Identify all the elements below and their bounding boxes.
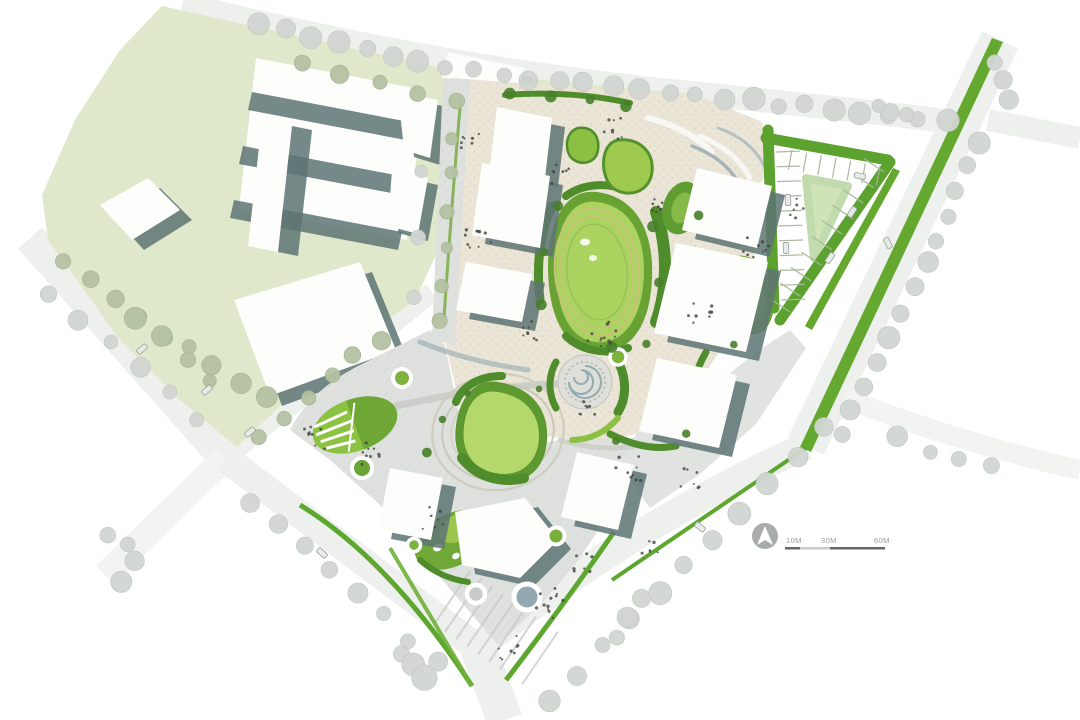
person-dot xyxy=(583,567,585,569)
tree xyxy=(840,400,860,420)
person-dot xyxy=(501,658,503,660)
person-dot xyxy=(619,117,622,120)
tree xyxy=(248,13,270,35)
person-dot xyxy=(367,448,369,450)
tree xyxy=(730,341,738,349)
person-dot xyxy=(636,466,638,468)
person-dot xyxy=(761,240,764,243)
tree xyxy=(987,55,1002,70)
person-dot xyxy=(752,256,754,258)
person-dot xyxy=(439,510,442,513)
person-dot xyxy=(377,453,380,456)
person-dot xyxy=(789,214,792,217)
person-dot xyxy=(542,603,545,606)
site-building xyxy=(472,163,550,248)
person-dot xyxy=(530,320,533,323)
person-dot xyxy=(365,454,368,457)
person-dot xyxy=(460,141,463,144)
tree xyxy=(540,248,548,256)
tree xyxy=(125,551,145,571)
person-dot xyxy=(460,146,463,149)
scale-label-10m: 10M xyxy=(786,536,802,545)
person-dot xyxy=(607,339,610,342)
person-dot xyxy=(553,171,555,173)
tree xyxy=(595,637,610,652)
tree xyxy=(163,385,177,399)
person-dot xyxy=(694,314,697,317)
person-dot xyxy=(708,315,710,317)
person-dot xyxy=(550,182,553,185)
tree xyxy=(629,78,650,99)
person-dot xyxy=(693,483,695,485)
tree xyxy=(124,307,146,329)
tree xyxy=(887,426,908,447)
person-dot xyxy=(484,231,487,234)
person-dot xyxy=(757,244,760,247)
person-dot xyxy=(653,198,655,200)
person-dot xyxy=(515,635,517,637)
person-dot xyxy=(437,519,439,521)
person-dot xyxy=(590,332,593,335)
tree xyxy=(107,290,125,308)
person-dot xyxy=(362,451,365,454)
person-dot xyxy=(471,137,474,140)
person-dot xyxy=(311,433,314,436)
tree xyxy=(868,354,886,372)
person-dot xyxy=(428,506,431,509)
tree xyxy=(422,448,432,458)
tree xyxy=(412,665,438,691)
person-dot xyxy=(463,137,465,139)
person-dot xyxy=(641,552,644,555)
tree xyxy=(325,368,340,383)
person-dot xyxy=(434,526,436,528)
person-dot xyxy=(802,207,805,210)
parking-stall-line xyxy=(779,240,803,241)
tree xyxy=(435,279,449,293)
person-dot xyxy=(442,523,444,525)
person-dot xyxy=(680,485,682,487)
person-dot xyxy=(555,595,558,598)
person-dot xyxy=(631,474,633,476)
tree xyxy=(649,582,672,605)
person-dot xyxy=(655,211,657,213)
tree xyxy=(410,86,426,102)
tree xyxy=(968,132,990,154)
person-dot xyxy=(575,554,578,557)
person-dot xyxy=(692,302,694,304)
person-dot xyxy=(582,400,585,403)
tree xyxy=(231,373,252,394)
pond xyxy=(514,584,540,610)
tree xyxy=(407,50,429,72)
tree xyxy=(586,95,595,104)
tree xyxy=(573,72,592,91)
scale-label-60m: 60M xyxy=(874,536,890,545)
person-dot xyxy=(319,428,322,431)
person-dot xyxy=(490,241,492,243)
scale-label-30m: 30M xyxy=(821,536,837,545)
tree xyxy=(111,571,132,592)
parking-stall-line xyxy=(778,210,802,211)
person-dot xyxy=(614,466,617,469)
parking-stall-line xyxy=(780,255,804,256)
person-dot xyxy=(552,617,554,619)
tree xyxy=(241,494,260,513)
person-dot xyxy=(593,413,596,416)
person-dot xyxy=(613,119,615,121)
person-dot xyxy=(629,476,632,479)
person-dot xyxy=(651,209,654,212)
tree xyxy=(545,90,557,102)
person-dot xyxy=(509,649,512,652)
tree xyxy=(464,390,471,397)
tree xyxy=(536,386,543,393)
tree xyxy=(372,331,391,350)
person-dot xyxy=(617,456,620,459)
tree xyxy=(276,19,295,38)
person-dot xyxy=(361,463,364,466)
tree xyxy=(553,201,563,211)
tree xyxy=(55,254,70,269)
person-dot xyxy=(793,209,795,211)
person-dot xyxy=(617,137,620,140)
person-dot xyxy=(554,587,557,590)
tree xyxy=(796,95,814,113)
tree xyxy=(848,102,871,125)
tree xyxy=(440,205,454,219)
person-dot xyxy=(369,455,372,458)
person-dot xyxy=(573,570,576,573)
person-dot xyxy=(588,570,591,573)
tree xyxy=(951,451,966,466)
tree xyxy=(788,447,808,467)
person-dot xyxy=(683,467,686,470)
tree xyxy=(923,445,937,459)
north-arrow-icon xyxy=(752,523,778,549)
tree xyxy=(899,107,914,122)
tree xyxy=(504,88,516,100)
tree xyxy=(959,157,976,174)
tree xyxy=(617,607,638,628)
person-dot xyxy=(762,251,764,253)
person-dot xyxy=(466,243,469,246)
person-dot xyxy=(513,652,516,655)
tree xyxy=(694,211,704,221)
tree xyxy=(360,40,376,56)
person-dot xyxy=(639,479,642,482)
person-dot xyxy=(546,605,549,608)
tree xyxy=(682,430,690,438)
site-plan-canvas: 10M 30M 60M xyxy=(0,0,1080,720)
site-plan-page: 10M 30M 60M xyxy=(0,0,1080,720)
tree xyxy=(411,230,426,245)
person-dot xyxy=(478,246,480,248)
person-dot xyxy=(323,448,326,451)
person-dot xyxy=(621,136,623,138)
tree xyxy=(40,286,57,303)
tree xyxy=(328,31,350,53)
tree xyxy=(100,527,116,543)
tree xyxy=(918,252,939,273)
person-dot xyxy=(422,528,424,530)
tree xyxy=(344,347,361,364)
tree xyxy=(612,437,620,445)
person-dot xyxy=(499,657,501,659)
person-dot xyxy=(742,250,745,253)
person-dot xyxy=(471,142,474,145)
person-dot xyxy=(746,236,749,239)
person-dot xyxy=(555,164,558,167)
person-dot xyxy=(651,202,654,205)
parking-stall-line xyxy=(779,225,803,226)
person-dot xyxy=(535,606,538,609)
tree xyxy=(68,310,88,330)
person-dot xyxy=(592,555,594,557)
person-dot xyxy=(464,234,467,237)
tree xyxy=(82,271,99,288)
person-dot xyxy=(710,304,713,307)
tree xyxy=(609,630,624,645)
tree xyxy=(180,352,195,367)
tree xyxy=(190,413,204,427)
tree xyxy=(620,101,631,112)
parking-stall-line xyxy=(776,151,800,152)
person-dot xyxy=(697,485,700,488)
tree xyxy=(330,65,349,84)
person-dot xyxy=(652,541,655,544)
tree xyxy=(878,326,900,348)
tree xyxy=(834,426,850,442)
person-dot xyxy=(477,230,480,233)
person-dot xyxy=(696,471,699,474)
tree xyxy=(296,537,313,554)
person-dot xyxy=(373,447,375,449)
person-dot xyxy=(526,332,529,335)
person-dot xyxy=(794,216,797,219)
tree xyxy=(300,27,322,49)
person-dot xyxy=(309,426,312,429)
tree xyxy=(823,99,845,121)
tree xyxy=(994,71,1013,90)
tree xyxy=(497,68,512,83)
tree xyxy=(567,666,586,685)
tree xyxy=(892,305,909,322)
person-dot xyxy=(657,551,659,553)
person-dot xyxy=(603,130,606,133)
person-dot xyxy=(469,246,471,248)
person-dot xyxy=(600,345,602,347)
tree xyxy=(277,411,292,426)
person-dot xyxy=(649,549,651,551)
tree xyxy=(182,340,196,354)
person-dot xyxy=(692,321,694,323)
person-dot xyxy=(767,245,770,248)
tree xyxy=(439,416,446,423)
tree xyxy=(256,387,277,408)
tree xyxy=(466,61,482,77)
tree xyxy=(946,182,963,199)
person-dot xyxy=(517,644,520,647)
tree xyxy=(446,133,458,145)
tree xyxy=(937,109,960,132)
tree xyxy=(647,221,658,232)
tree xyxy=(539,690,561,712)
person-dot xyxy=(586,339,589,342)
tree xyxy=(941,209,956,224)
person-dot xyxy=(431,515,433,517)
person-dot xyxy=(607,321,610,324)
person-dot xyxy=(626,471,629,474)
tree xyxy=(675,556,692,573)
parking-stall-line xyxy=(777,181,801,182)
person-dot xyxy=(567,167,570,170)
tree xyxy=(815,418,834,437)
tree xyxy=(983,458,999,474)
tree xyxy=(519,71,538,90)
tree xyxy=(348,583,368,603)
tree xyxy=(438,61,453,76)
person-dot xyxy=(498,648,500,650)
tree xyxy=(445,166,458,179)
person-dot xyxy=(579,413,582,416)
person-dot xyxy=(661,201,664,204)
person-dot xyxy=(614,329,617,332)
person-dot xyxy=(648,540,650,542)
tree xyxy=(449,93,465,109)
tree xyxy=(906,278,924,296)
tree xyxy=(407,290,422,305)
person-dot xyxy=(637,455,640,458)
tree xyxy=(714,89,735,110)
person-dot xyxy=(659,208,662,211)
person-dot xyxy=(614,336,616,338)
person-dot xyxy=(522,326,525,329)
tree xyxy=(302,391,316,405)
person-dot xyxy=(533,337,536,340)
person-dot xyxy=(303,428,306,431)
tree xyxy=(703,531,722,550)
tree xyxy=(269,515,288,534)
tree xyxy=(321,561,338,578)
person-dot xyxy=(535,339,538,342)
person-dot xyxy=(565,169,568,172)
person-dot xyxy=(657,205,660,208)
tree xyxy=(855,378,873,396)
person-dot xyxy=(465,228,468,231)
person-dot xyxy=(607,118,610,121)
tree xyxy=(756,473,778,495)
person-dot xyxy=(765,249,768,252)
tree xyxy=(654,278,664,288)
person-dot xyxy=(686,468,688,470)
person-dot xyxy=(599,339,601,341)
person-dot xyxy=(635,478,638,481)
tree xyxy=(432,313,447,328)
tree xyxy=(202,356,221,375)
tree xyxy=(151,326,172,347)
person-dot xyxy=(528,326,530,328)
parking-stall-line xyxy=(781,299,805,300)
person-dot xyxy=(795,198,797,200)
tree xyxy=(551,72,569,90)
tree xyxy=(373,75,387,89)
tree xyxy=(999,90,1019,110)
tree xyxy=(728,502,751,525)
tree xyxy=(104,335,118,349)
person-dot xyxy=(364,442,366,444)
person-dot xyxy=(600,337,603,340)
tree xyxy=(632,589,650,607)
tree xyxy=(376,606,390,620)
tree xyxy=(882,104,899,121)
person-dot xyxy=(687,314,690,317)
person-dot xyxy=(522,334,524,336)
person-dot xyxy=(561,599,564,602)
tree xyxy=(294,55,310,71)
tree xyxy=(441,242,452,253)
tree xyxy=(771,99,787,115)
tree xyxy=(415,165,428,178)
tree xyxy=(743,87,766,110)
person-dot xyxy=(588,405,591,408)
person-dot xyxy=(314,445,316,447)
tree xyxy=(663,85,679,101)
person-dot xyxy=(746,253,749,256)
person-dot xyxy=(548,610,551,613)
person-dot xyxy=(478,133,480,135)
tree xyxy=(687,87,702,102)
tree xyxy=(383,47,403,67)
person-dot xyxy=(710,310,713,313)
tree xyxy=(642,340,650,348)
person-dot xyxy=(611,131,614,134)
parking-stall-line xyxy=(780,270,804,271)
tree xyxy=(604,76,624,96)
person-dot xyxy=(795,203,798,206)
person-dot xyxy=(549,597,552,600)
tree xyxy=(536,299,547,310)
person-dot xyxy=(561,170,564,173)
tree xyxy=(131,358,151,378)
person-dot xyxy=(307,433,310,436)
person-dot xyxy=(603,336,606,339)
tree xyxy=(120,537,135,552)
person-dot xyxy=(539,592,542,595)
person-dot xyxy=(585,552,588,555)
tree xyxy=(928,233,944,249)
